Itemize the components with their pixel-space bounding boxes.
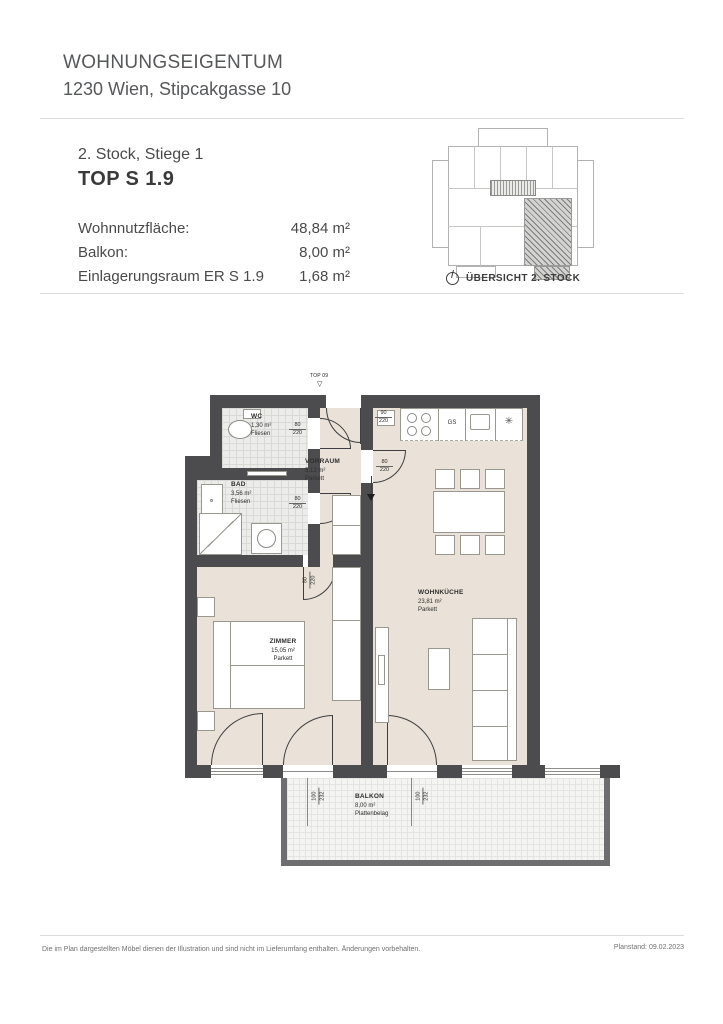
room-name: VORRAUM: [305, 458, 365, 467]
north-compass-icon: [446, 272, 459, 285]
room-floor: Fliesen: [231, 498, 283, 506]
wc-door-leaf: [320, 448, 351, 449]
floor-plan: TOP 09 ▽: [183, 373, 623, 873]
nightstand: [197, 597, 215, 617]
counter-divider: [465, 408, 466, 441]
divider: [40, 118, 684, 119]
floor-stair-line: 2. Stock, Stiege 1: [78, 146, 203, 164]
dim-width: 80: [289, 496, 306, 503]
dining-table: [433, 491, 505, 533]
dim-height: 232: [422, 788, 430, 805]
zimmer-balcony-door-leaf: [332, 715, 333, 765]
wall: [185, 765, 211, 778]
wc-door-dim: 80 220: [289, 422, 306, 436]
plan-status-label: Planstand:: [614, 944, 647, 951]
toilet-icon: [228, 420, 252, 439]
bad-door-dim: 80 220: [289, 496, 306, 510]
nightstand: [197, 711, 215, 731]
wall: [361, 408, 373, 450]
sofa-backrest-line: [507, 618, 508, 761]
overview-line: [552, 146, 553, 188]
dim-width: 90: [375, 410, 392, 417]
info-row: Wohnnutzfläche: 48,84 m²: [78, 220, 350, 242]
wall: [333, 765, 387, 778]
info-label: Balkon:: [78, 244, 128, 261]
room-floor: Parkett: [238, 655, 328, 663]
zimmer-door-dim: 80 220: [302, 572, 316, 589]
entrance-label: TOP 09: [310, 373, 328, 379]
room-area: 3,56 m²: [231, 490, 283, 498]
overview-plan: [428, 122, 598, 290]
overview-line: [480, 226, 481, 266]
dim-width: 80: [376, 459, 393, 466]
window: [462, 766, 512, 777]
unit-title: TOP S 1.9: [78, 168, 174, 191]
room-area: 15,05 m²: [238, 647, 328, 655]
wall: [512, 765, 545, 778]
room-area: 5,12 m²: [305, 467, 365, 475]
zimmer-wardrobe: [332, 567, 361, 701]
wardrobe-divider: [332, 620, 361, 621]
sink: [470, 414, 490, 430]
dim-height: 232: [318, 788, 326, 805]
info-value: 48,84 m²: [291, 220, 350, 237]
chair: [460, 535, 480, 555]
stove-burner: [421, 413, 431, 423]
wohnkueche-label: WOHNKÜCHE 23,81 m² Parkett: [418, 589, 498, 614]
bed-center-line: [230, 665, 305, 666]
wall: [437, 765, 462, 778]
disclaimer: Die im Plan dargestellten Möbel dienen d…: [42, 946, 420, 953]
stove-burner: [407, 426, 417, 436]
address: 1230 Wien, Stipcakgasse 10: [63, 79, 291, 100]
room-area: 23,81 m²: [418, 598, 498, 606]
wall: [361, 483, 373, 765]
divider: [40, 935, 684, 936]
dimension-line: [307, 778, 308, 826]
wall: [527, 395, 540, 778]
coffee-table: [428, 648, 450, 690]
stove-burner: [421, 426, 431, 436]
wall: [185, 456, 197, 778]
dim-height: 220: [289, 503, 306, 511]
window: [211, 766, 263, 777]
wall: [210, 395, 326, 408]
shower: [199, 513, 242, 555]
plan-status-date: 09.02.2023: [649, 944, 684, 951]
kitchen-door-leaf: [373, 450, 406, 451]
stove-burner: [407, 413, 417, 423]
balcony-door-dim: 100 232: [311, 788, 325, 805]
wall: [308, 524, 320, 567]
chair: [460, 469, 480, 489]
info-label: Wohnnutzfläche:: [78, 220, 189, 237]
plan-sheet: WOHNUNGSEIGENTUM 1230 Wien, Stipcakgasse…: [0, 0, 723, 1024]
dim-height: 220: [289, 429, 306, 437]
sofa-cushion-line: [472, 654, 507, 655]
room-floor: Plattenbelag: [355, 810, 435, 818]
sofa-cushion-line: [472, 690, 507, 691]
info-label: Einlagerungsraum ER S 1.9: [78, 268, 264, 285]
divider: [40, 293, 684, 294]
counter-divider: [495, 408, 496, 441]
wall: [308, 408, 320, 418]
balcony-door-dim: 100 232: [415, 788, 429, 805]
wall: [263, 765, 283, 778]
overview-caption: ÜBERSICHT 2. STOCK: [446, 272, 580, 285]
balcony-rail: [604, 778, 610, 866]
kitchen-door-dim: 80 220: [376, 459, 393, 473]
dim-width: 80: [302, 572, 309, 589]
balcony-door-opening: [387, 766, 437, 777]
balcony-rail: [281, 778, 287, 866]
chair: [435, 469, 455, 489]
info-row: Balkon: 8,00 m²: [78, 244, 350, 266]
plan-status: Planstand: 09.02.2023: [614, 944, 684, 951]
dishwasher-label: GS: [440, 419, 464, 427]
zimmer-window-leaf: [262, 713, 263, 765]
entry-path-line: [371, 476, 372, 494]
room-name: BAD: [231, 481, 283, 490]
room-name: ZIMMER: [238, 638, 328, 647]
radiator: [247, 471, 287, 476]
balkon-floor: [287, 778, 604, 860]
info-value: 8,00 m²: [299, 244, 350, 261]
counter-divider: [438, 408, 439, 441]
overview-building-wing: [432, 160, 449, 248]
washbasin-drain: [210, 499, 213, 502]
wall: [361, 395, 540, 408]
wall: [185, 555, 303, 567]
sofa-cushion-line: [472, 726, 507, 727]
dim-height: 220: [309, 572, 317, 589]
bad-label: BAD 3,56 m² Fliesen: [231, 481, 283, 506]
room-name: WC: [251, 413, 303, 422]
document-title: WOHNUNGSEIGENTUM: [63, 52, 283, 74]
overview-stairwell: [490, 180, 536, 196]
dim-width: 100: [311, 788, 318, 805]
room-floor: Parkett: [418, 606, 498, 614]
entrance-door-leaf: [360, 408, 361, 444]
dim-height: 220: [376, 466, 393, 474]
room-name: WOHNKÜCHE: [418, 589, 498, 598]
info-row: Einlagerungsraum ER S 1.9 1,68 m²: [78, 268, 350, 290]
vorraum-label: VORRAUM 5,12 m² Parkett: [305, 458, 365, 483]
chair: [435, 535, 455, 555]
light-point-icon: ✳: [499, 415, 519, 429]
chair: [485, 469, 505, 489]
closet-divider: [332, 525, 361, 526]
info-value: 1,68 m²: [299, 268, 350, 285]
room-floor: Parkett: [305, 475, 365, 483]
bad-door-leaf: [320, 493, 351, 494]
entry-direction-arrow-icon: [367, 494, 375, 501]
overview-highlighted-unit: [524, 198, 572, 266]
overview-line: [474, 146, 475, 188]
window: [545, 766, 600, 777]
dim-width: 100: [415, 788, 422, 805]
chair: [485, 535, 505, 555]
entrance-door-dim: 90 220: [375, 410, 392, 424]
balcony-rail: [281, 860, 610, 866]
washing-machine-drum: [257, 529, 276, 548]
dim-height: 220: [375, 417, 392, 425]
tv: [378, 655, 385, 685]
balcony-door-opening: [283, 766, 333, 777]
overview-caption-text: ÜBERSICHT 2. STOCK: [466, 273, 580, 284]
wall: [600, 765, 620, 778]
overview-building-part: [478, 128, 548, 148]
entrance-arrow-icon: ▽: [317, 381, 322, 388]
dim-width: 80: [289, 422, 306, 429]
zimmer-label: ZIMMER 15,05 m² Parkett: [238, 638, 328, 663]
overview-building-wing: [577, 160, 594, 248]
